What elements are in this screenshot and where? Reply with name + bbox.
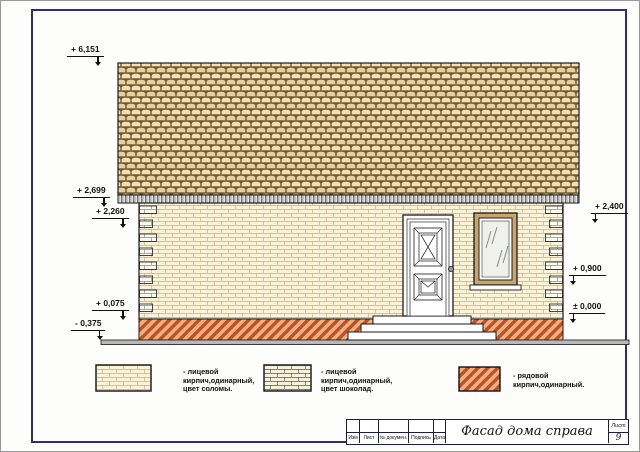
legend-swatch-common-brick <box>459 367 500 391</box>
elevation-arrow-icon <box>595 214 596 220</box>
elevation-mark-label: + 0,075 <box>92 299 129 311</box>
legend-line: цвет шоколад. <box>321 385 392 394</box>
elevation-arrow-icon <box>103 198 104 204</box>
elevation-arrow-icon <box>573 314 574 320</box>
title-block: Изм Лист № докумен. Подпись Дата Фасад д… <box>346 419 629 445</box>
title-block-empty-cell <box>360 420 379 433</box>
sheet-number: 9 <box>609 433 628 443</box>
elevation-arrow-icon <box>99 331 100 337</box>
elevation-mark-label: + 0,900 <box>569 264 606 276</box>
window <box>470 213 521 290</box>
elevation-mark-label: - 0,375 <box>71 319 105 331</box>
legend-swatch-chocolate-brick <box>264 365 311 391</box>
elevation-mark-wall-top-right: + 2,400 <box>591 202 628 214</box>
elevation-arrow-icon <box>122 219 123 225</box>
elevation-mark-label: + 2,699 <box>73 186 110 198</box>
elevation-mark-porch: + 0,075 <box>92 299 129 311</box>
drawing-title: Фасад дома справа <box>446 420 609 443</box>
title-block-empty-cell <box>379 420 409 433</box>
drawing-sheet: + 6,151 + 2,699 + 2,260 + 0,075 - 0,375 … <box>0 0 640 452</box>
title-block-empty-cell <box>434 420 446 433</box>
elevation-mark-label: + 2,260 <box>92 207 129 219</box>
elevation-mark-zero-level: ± 0,000 <box>569 302 605 314</box>
legend-line: кирпич,одинарный. <box>513 381 584 390</box>
entrance-door <box>403 215 454 316</box>
elevation-arrow-icon <box>97 57 98 63</box>
roof <box>118 63 579 195</box>
title-block-col-izm: Изм <box>347 433 360 443</box>
legend-label-common-brick: - рядовой кирпич,одинарный. <box>513 372 584 389</box>
elevation-mark-window-sill: + 0,900 <box>569 264 606 276</box>
elevation-mark-label: + 6,151 <box>67 45 104 57</box>
elevation-mark-label: ± 0,000 <box>569 302 605 314</box>
sheet-label: Лист <box>609 420 628 433</box>
eaves-fascia <box>118 195 579 203</box>
door-knob <box>448 266 453 271</box>
legend-line: цвет соломы. <box>183 385 254 394</box>
elevation-mark-eaves: + 2,699 <box>73 186 110 198</box>
ground-line <box>101 340 629 345</box>
title-block-col-podpis: Подпись <box>409 433 434 443</box>
legend-swatch-straw-brick <box>96 365 151 391</box>
legend-label-chocolate-brick: - лицевой кирпич,одинарный, цвет шоколад… <box>321 368 392 394</box>
title-block-col-list: Лист <box>360 433 379 443</box>
elevation-arrow-icon <box>573 276 574 282</box>
elevation-mark-ridge: + 6,151 <box>67 45 104 57</box>
elevation-mark-ground: - 0,375 <box>71 319 105 331</box>
elevation-mark-wall-top-left: + 2,260 <box>92 207 129 219</box>
window-sill <box>470 285 521 290</box>
title-block-empty-cell <box>347 420 360 433</box>
title-block-col-ndoc: № докумен. <box>379 433 409 443</box>
elevation-mark-label: + 2,400 <box>591 202 628 214</box>
legend-label-straw-brick: - лицевой кирпич,одинарный, цвет соломы. <box>183 368 254 394</box>
title-block-col-data: Дата <box>434 433 446 443</box>
title-block-empty-cell <box>409 420 434 433</box>
elevation-arrow-icon <box>122 311 123 317</box>
